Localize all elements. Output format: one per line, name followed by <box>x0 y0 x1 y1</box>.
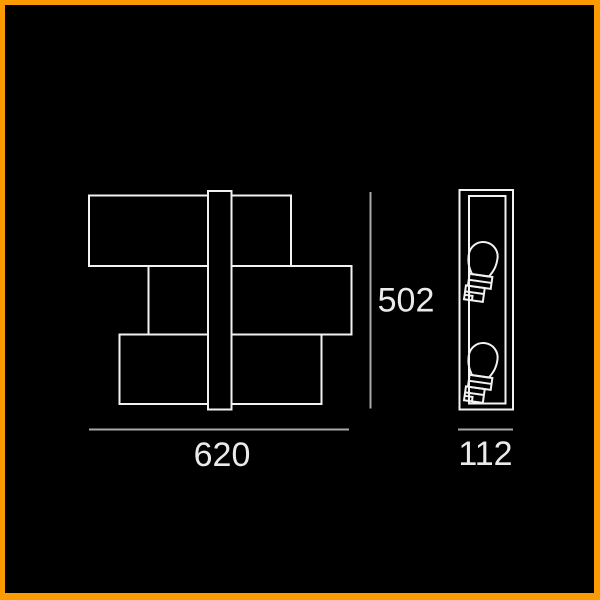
front-center-bar <box>208 191 232 410</box>
front-view <box>89 191 352 410</box>
front-middle-box <box>149 266 352 335</box>
side-view <box>460 190 514 410</box>
dimension-depth: 112 <box>458 430 513 474</box>
dimension-width: 620 <box>89 430 349 475</box>
height-dimension-label: 502 <box>378 282 435 320</box>
dimension-height: 502 <box>371 192 435 409</box>
diagram-canvas: 502 620 112 <box>0 0 600 600</box>
width-dimension-label: 620 <box>194 436 251 474</box>
front-top-box <box>89 196 291 267</box>
technical-drawing: 502 620 112 <box>0 0 600 600</box>
depth-dimension-label: 112 <box>458 435 512 473</box>
